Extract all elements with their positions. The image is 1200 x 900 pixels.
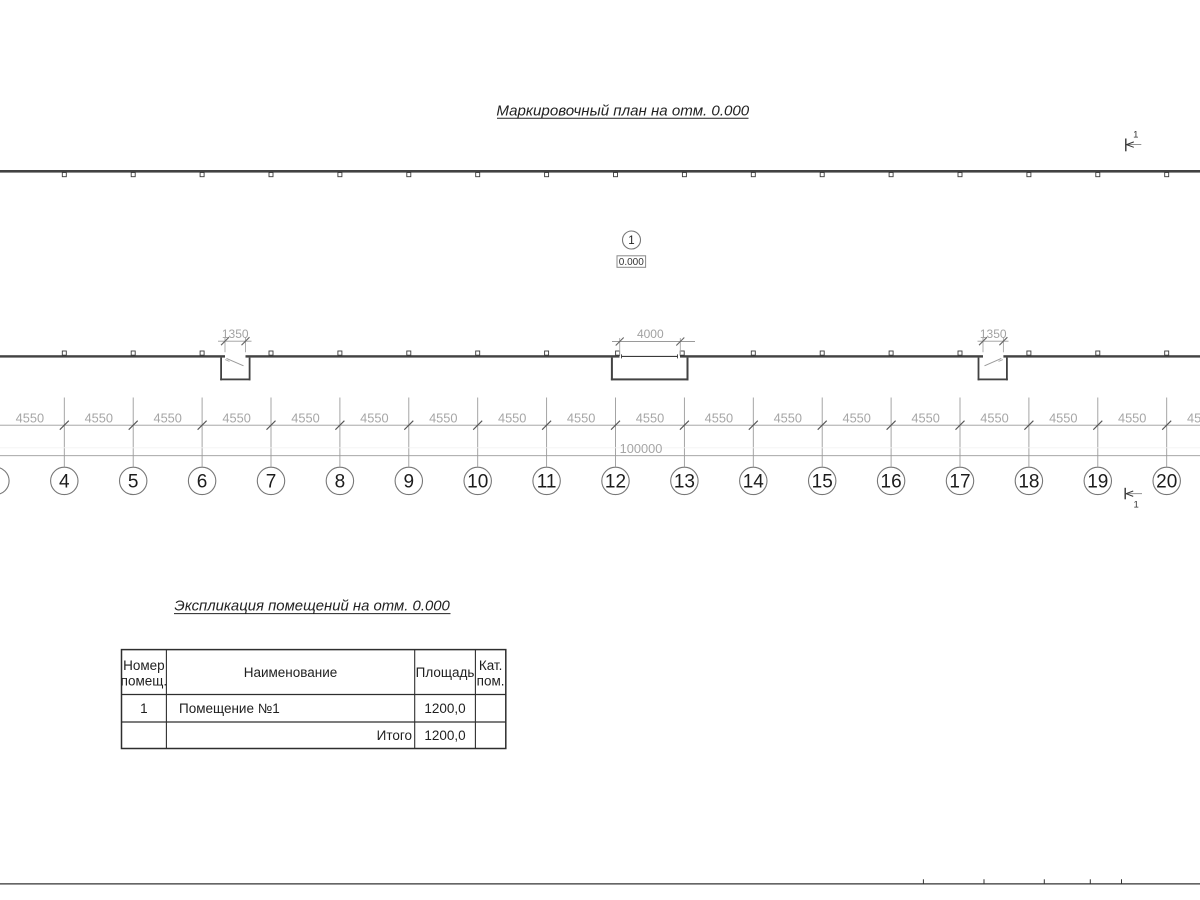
- svg-text:14: 14: [743, 471, 765, 492]
- svg-text:17: 17: [949, 471, 970, 492]
- svg-text:0.000: 0.000: [619, 257, 644, 268]
- svg-text:4550: 4550: [1049, 410, 1077, 425]
- svg-text:4550: 4550: [842, 410, 870, 425]
- svg-text:10: 10: [467, 471, 488, 492]
- svg-text:4550: 4550: [911, 410, 939, 425]
- svg-text:100000: 100000: [620, 441, 663, 456]
- svg-text:1: 1: [628, 235, 634, 247]
- svg-text:4550: 4550: [980, 410, 1008, 425]
- svg-text:4550: 4550: [498, 410, 526, 425]
- svg-text:4550: 4550: [291, 410, 319, 425]
- svg-text:Кат.: Кат.: [479, 658, 503, 673]
- svg-text:Помещение №1: Помещение №1: [179, 701, 280, 716]
- svg-text:Номер: Номер: [123, 658, 165, 673]
- svg-text:8: 8: [335, 471, 346, 492]
- svg-text:13: 13: [674, 471, 695, 492]
- svg-text:4550: 4550: [774, 410, 802, 425]
- svg-text:18: 18: [1018, 471, 1039, 492]
- svg-text:1200,0: 1200,0: [424, 701, 465, 716]
- svg-text:19: 19: [1087, 471, 1108, 492]
- svg-text:4550: 4550: [1118, 410, 1146, 425]
- svg-text:1: 1: [1133, 129, 1138, 140]
- svg-text:11: 11: [537, 471, 557, 492]
- svg-text:6: 6: [197, 471, 208, 492]
- svg-text:16: 16: [881, 471, 902, 492]
- svg-text:помещ.: помещ.: [121, 673, 167, 688]
- svg-text:4550: 4550: [85, 410, 113, 425]
- svg-text:9: 9: [404, 471, 415, 492]
- svg-text:Итого: Итого: [377, 728, 412, 743]
- svg-text:4550: 4550: [16, 410, 44, 425]
- svg-text:4550: 4550: [153, 410, 181, 425]
- svg-text:15: 15: [812, 471, 833, 492]
- svg-text:4550: 4550: [705, 410, 733, 425]
- svg-text:1: 1: [1134, 500, 1139, 511]
- svg-text:Маркировочный план на отм. 0.0: Маркировочный план на отм. 0.000: [496, 103, 749, 120]
- svg-text:7: 7: [266, 471, 277, 492]
- svg-text:4550: 4550: [1187, 410, 1200, 425]
- svg-text:4550: 4550: [222, 410, 250, 425]
- svg-text:12: 12: [605, 471, 626, 492]
- svg-text:4550: 4550: [567, 410, 595, 425]
- svg-text:4550: 4550: [360, 410, 388, 425]
- svg-text:1350: 1350: [222, 327, 249, 341]
- svg-text:4550: 4550: [636, 410, 664, 425]
- svg-text:1350: 1350: [980, 327, 1007, 341]
- svg-text:20: 20: [1156, 471, 1177, 492]
- svg-text:Площадь: Площадь: [416, 665, 475, 680]
- svg-text:1: 1: [140, 701, 148, 716]
- svg-text:1200,0: 1200,0: [424, 728, 465, 743]
- svg-text:4550: 4550: [429, 410, 457, 425]
- svg-text:4: 4: [59, 471, 70, 492]
- svg-text:пом.: пом.: [477, 673, 505, 688]
- svg-text:5: 5: [128, 471, 139, 492]
- svg-text:Наименование: Наименование: [244, 665, 338, 680]
- svg-text:Экспликация помещений на отм.: Экспликация помещений на отм. 0.000: [174, 599, 450, 615]
- svg-text:4000: 4000: [637, 327, 664, 341]
